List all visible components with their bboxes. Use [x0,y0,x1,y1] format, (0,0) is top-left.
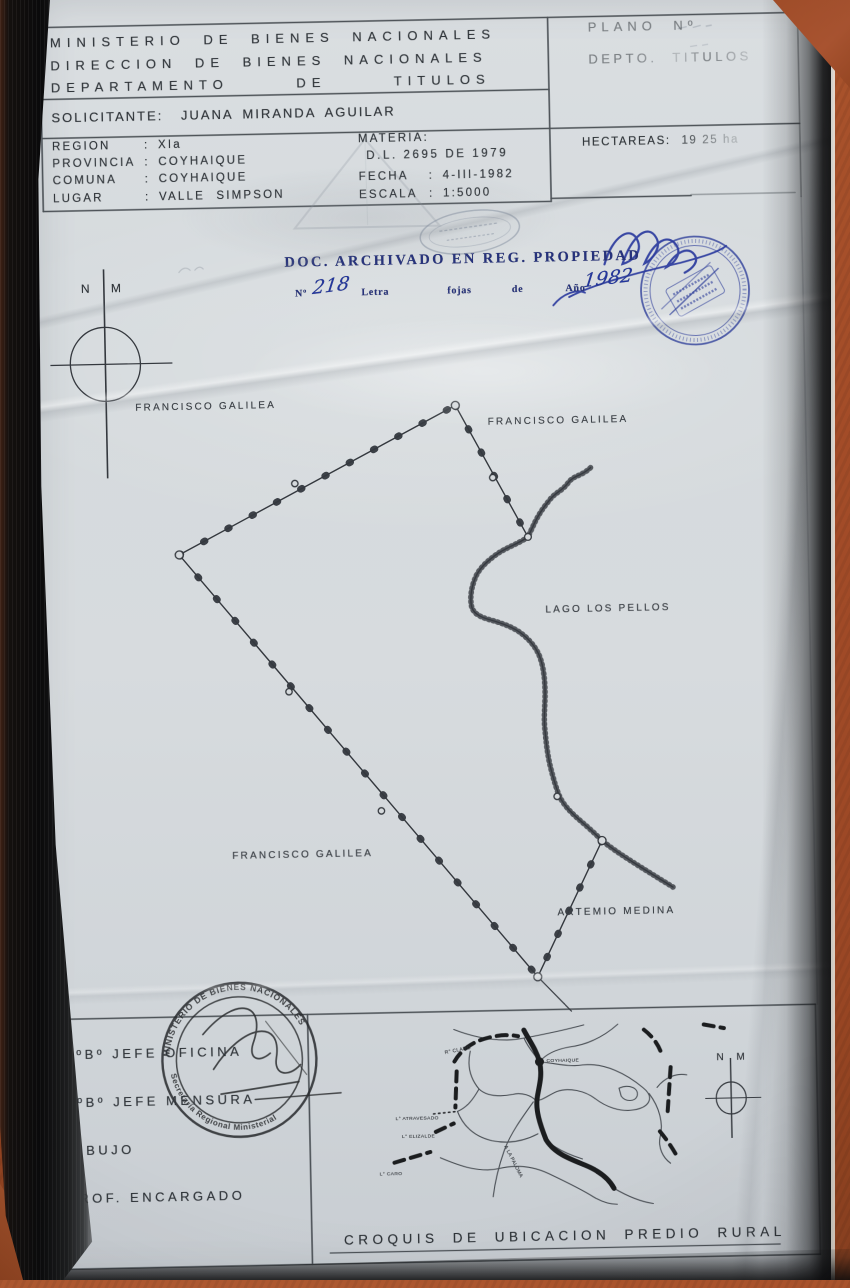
photographed-survey-plan: { "header": { "ministry_lines": ["MINIST… [0,0,850,1280]
croquis-lago-atravesado-label: L° ATRAVESADO [396,1115,439,1122]
region-label: REGION [52,140,144,155]
solicitante-value: JUANA MIRANDA AGUILAR [181,103,396,122]
hectareas-label: HECTAREAS [582,135,666,149]
materia-label-text: MATERIA [358,132,424,145]
croquis-north-m-label: M [736,1052,745,1064]
letra-label: Letra [361,287,389,299]
numero-handwritten: 218 [311,274,351,300]
north-arrow-croquis [704,1057,762,1138]
croquis-city-label: COYHAIQUE [546,1057,579,1063]
sig-row-dibujo: DIBUJO [66,1143,135,1159]
ano-handwritten: 1982 [582,265,634,293]
colon: : [158,108,164,123]
escala-row: ESCALA : 1:5000 [359,187,492,203]
croquis-lago-elizalde-label: L° ELIZALDE [402,1133,435,1139]
hectareas-value: 19 25 ha [681,134,739,147]
region-value: XIa [158,139,182,153]
colon: : [429,170,443,183]
colon: : [423,132,429,144]
croquis-map [392,1022,728,1209]
croquis-lago-caro-label: L° CARO [380,1171,403,1177]
materia-label: MATERIA: [358,132,429,147]
lugar-label: LUGAR [53,192,145,207]
colon: : [144,139,158,152]
numero-label: Nº [295,288,307,300]
fecha-label: FECHA [359,170,429,185]
lugar-value: VALLE SIMPSON [159,189,285,205]
north-arrow-main [49,268,175,479]
croquis-north-n-label: N [716,1052,723,1064]
region-row: REGION : XIa [52,139,182,155]
colon: : [145,191,159,204]
north-n-label: N [81,283,90,297]
comuna-label: COMUNA [53,174,145,189]
lake-shoreline [468,466,673,891]
fecha-value: 4-III-1982 [443,168,514,183]
provincia-value: COYHAIQUE [158,154,247,169]
plano-number-label: PLANO Nº [588,18,698,35]
materia-value: D.L. 2695 DE 1979 [366,147,508,163]
solicitante-label: SOLICITANTE [51,108,158,125]
escala-label: ESCALA [359,188,429,203]
parcel-boundary [176,403,605,1019]
colon: : [144,156,158,169]
colon: : [429,188,443,201]
provincia-label: PROVINCIA [52,157,144,172]
neighbor-se-label: ARTEMIO MEDINA [557,905,675,919]
colon: : [145,173,159,186]
comuna-value: COYHAIQUE [159,171,248,186]
de-label: de [512,284,524,296]
plan-content: MINISTERIO DE BIENES NACIONALES Secretar… [0,0,850,1288]
escala-value: 1:5000 [443,187,492,201]
north-m-label: M [111,282,121,296]
colon: : [666,135,671,147]
fojas-label: fojas [447,285,472,297]
